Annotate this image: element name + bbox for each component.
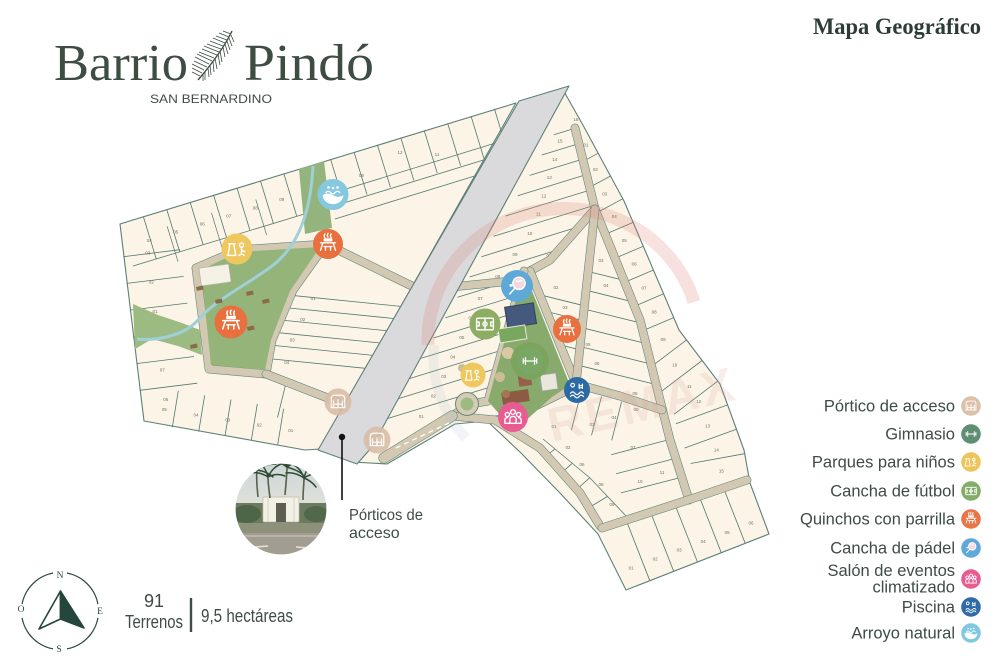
svg-text:09: 09 xyxy=(279,197,285,202)
svg-text:Terrenos: Terrenos xyxy=(125,612,183,632)
svg-text:09: 09 xyxy=(609,502,615,507)
svg-text:15: 15 xyxy=(719,469,725,474)
svg-text:01: 01 xyxy=(583,143,589,148)
svg-text:06: 06 xyxy=(200,222,206,227)
svg-text:Salón de eventos: Salón de eventos xyxy=(827,562,955,580)
svg-text:03: 03 xyxy=(677,548,683,553)
svg-text:Parques para niños: Parques para niños xyxy=(812,454,955,472)
svg-text:01: 01 xyxy=(419,414,425,419)
svg-text:16: 16 xyxy=(573,117,579,122)
svg-text:14: 14 xyxy=(552,157,558,162)
svg-text:11: 11 xyxy=(660,470,665,475)
svg-text:05: 05 xyxy=(585,342,591,347)
svg-text:10: 10 xyxy=(637,479,643,484)
svg-text:06: 06 xyxy=(632,262,638,267)
svg-text:10: 10 xyxy=(672,363,678,368)
svg-text:13: 13 xyxy=(547,175,553,180)
svg-text:04: 04 xyxy=(450,354,456,359)
svg-text:Quinchos con parrilla: Quinchos con parrilla xyxy=(800,511,956,529)
svg-text:15: 15 xyxy=(557,139,563,144)
svg-text:E: E xyxy=(97,607,103,617)
svg-text:Cancha de fútbol: Cancha de fútbol xyxy=(830,483,955,501)
svg-text:07: 07 xyxy=(478,296,484,301)
svg-text:06: 06 xyxy=(163,397,169,402)
svg-text:14: 14 xyxy=(714,448,720,453)
svg-text:02: 02 xyxy=(149,280,155,285)
svg-text:09: 09 xyxy=(512,252,518,257)
svg-text:Mapa Geográfico: Mapa Geográfico xyxy=(813,14,981,40)
svg-text:04: 04 xyxy=(147,238,153,243)
svg-text:04: 04 xyxy=(701,539,707,544)
svg-text:06: 06 xyxy=(579,462,585,467)
svg-text:07: 07 xyxy=(641,286,647,291)
svg-text:climatizado: climatizado xyxy=(872,579,955,597)
svg-text:08: 08 xyxy=(598,482,604,487)
svg-text:01: 01 xyxy=(629,565,635,570)
svg-text:Pórtico de acceso: Pórtico de acceso xyxy=(824,398,955,416)
svg-text:SAN BERNARDINO: SAN BERNARDINO xyxy=(150,92,272,106)
svg-text:10: 10 xyxy=(527,231,533,236)
svg-text:02: 02 xyxy=(653,557,659,562)
svg-text:08: 08 xyxy=(359,173,365,178)
svg-text:07: 07 xyxy=(630,445,636,450)
svg-text:07: 07 xyxy=(226,214,232,219)
svg-text:04: 04 xyxy=(193,412,199,417)
svg-text:03: 03 xyxy=(290,338,296,343)
svg-text:03: 03 xyxy=(602,191,608,196)
svg-text:acceso: acceso xyxy=(349,525,400,542)
svg-text:Cancha de pádel: Cancha de pádel xyxy=(830,540,955,558)
svg-text:S: S xyxy=(56,645,61,655)
svg-text:91: 91 xyxy=(144,591,164,611)
svg-text:06: 06 xyxy=(748,521,754,526)
svg-text:Pórticos de: Pórticos de xyxy=(349,507,423,524)
svg-text:08: 08 xyxy=(652,309,658,314)
svg-text:05: 05 xyxy=(162,407,168,412)
svg-text:Barrio: Barrio xyxy=(54,35,188,92)
svg-text:03: 03 xyxy=(225,418,231,423)
svg-text:Gimnasio: Gimnasio xyxy=(885,426,955,444)
svg-text:13: 13 xyxy=(705,423,711,428)
svg-text:Arroyo natural: Arroyo natural xyxy=(851,625,955,643)
svg-text:04: 04 xyxy=(603,283,609,288)
svg-text:Piscina: Piscina xyxy=(902,599,956,617)
svg-text:05: 05 xyxy=(173,230,179,235)
svg-text:02: 02 xyxy=(257,423,263,428)
svg-text:01: 01 xyxy=(288,428,294,433)
svg-text:03: 03 xyxy=(598,258,604,263)
svg-text:03: 03 xyxy=(145,250,151,255)
svg-text:08: 08 xyxy=(253,205,259,210)
svg-text:06: 06 xyxy=(594,361,600,366)
svg-text:05: 05 xyxy=(459,335,465,340)
svg-text:09: 09 xyxy=(661,337,667,342)
svg-text:04: 04 xyxy=(284,360,290,365)
svg-text:05: 05 xyxy=(622,238,628,243)
svg-text:03: 03 xyxy=(562,305,568,310)
svg-text:N: N xyxy=(57,571,64,581)
svg-text:12: 12 xyxy=(397,150,403,155)
svg-text:O: O xyxy=(18,605,25,615)
svg-text:01: 01 xyxy=(311,296,317,301)
svg-text:02: 02 xyxy=(300,317,306,322)
svg-text:02: 02 xyxy=(593,167,599,172)
svg-text:07: 07 xyxy=(160,368,166,373)
svg-text:05: 05 xyxy=(725,530,731,535)
svg-text:12: 12 xyxy=(541,193,547,198)
svg-text:9,5 hectáreas: 9,5 hectáreas xyxy=(201,606,293,626)
svg-text:03: 03 xyxy=(441,374,447,379)
svg-text:11: 11 xyxy=(435,152,440,157)
svg-text:Pindó: Pindó xyxy=(244,35,374,92)
svg-text:02: 02 xyxy=(553,285,559,290)
